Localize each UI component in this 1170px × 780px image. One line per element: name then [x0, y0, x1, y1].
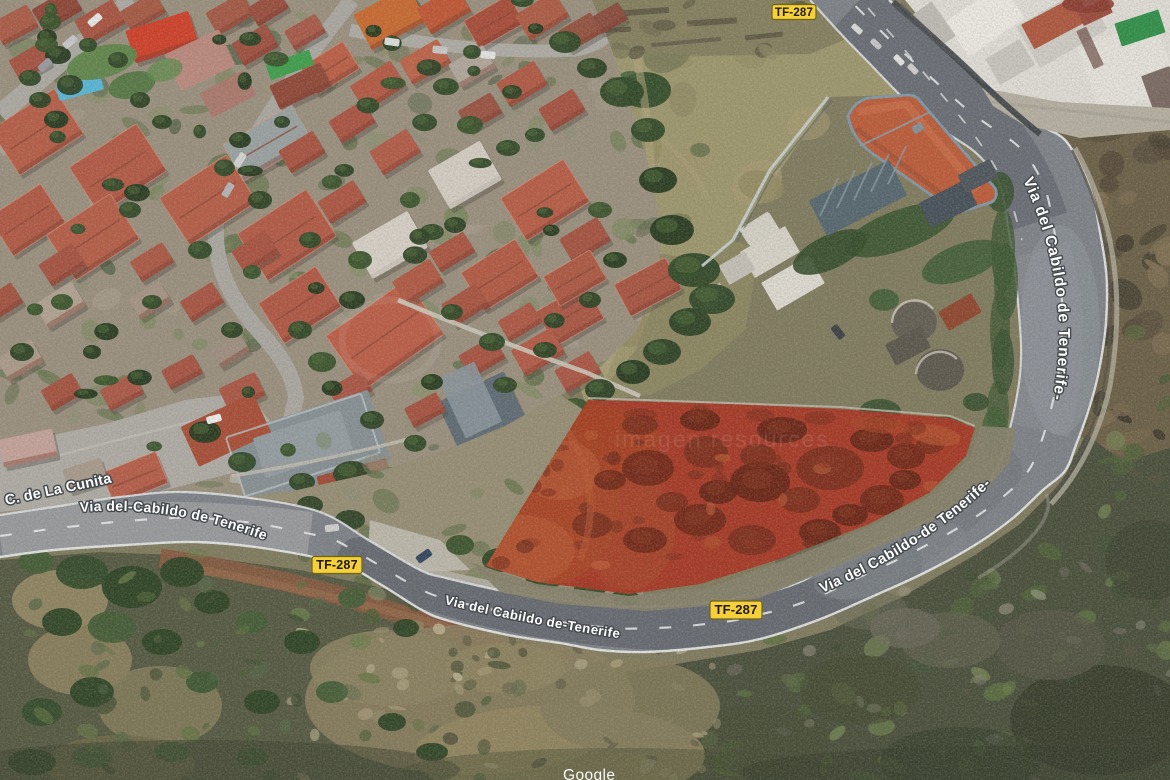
svg-text:TF-287: TF-287: [316, 558, 358, 572]
svg-text:imagen resources: imagen resources: [615, 426, 830, 452]
svg-text:TF-287: TF-287: [714, 602, 757, 617]
svg-text:TF-287: TF-287: [775, 7, 813, 19]
svg-text:Google: Google: [563, 767, 615, 780]
